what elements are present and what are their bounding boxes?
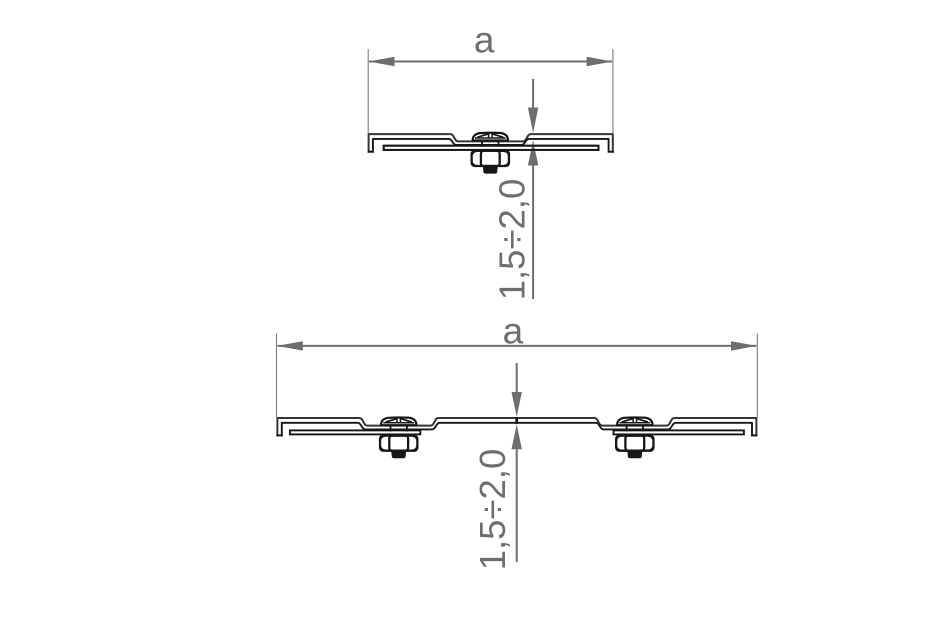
svg-text:1,5÷2,0: 1,5÷2,0 — [472, 449, 513, 571]
svg-text:1,5÷2,0: 1,5÷2,0 — [492, 179, 533, 301]
svg-text:a: a — [474, 20, 495, 61]
svg-text:a: a — [503, 311, 524, 352]
